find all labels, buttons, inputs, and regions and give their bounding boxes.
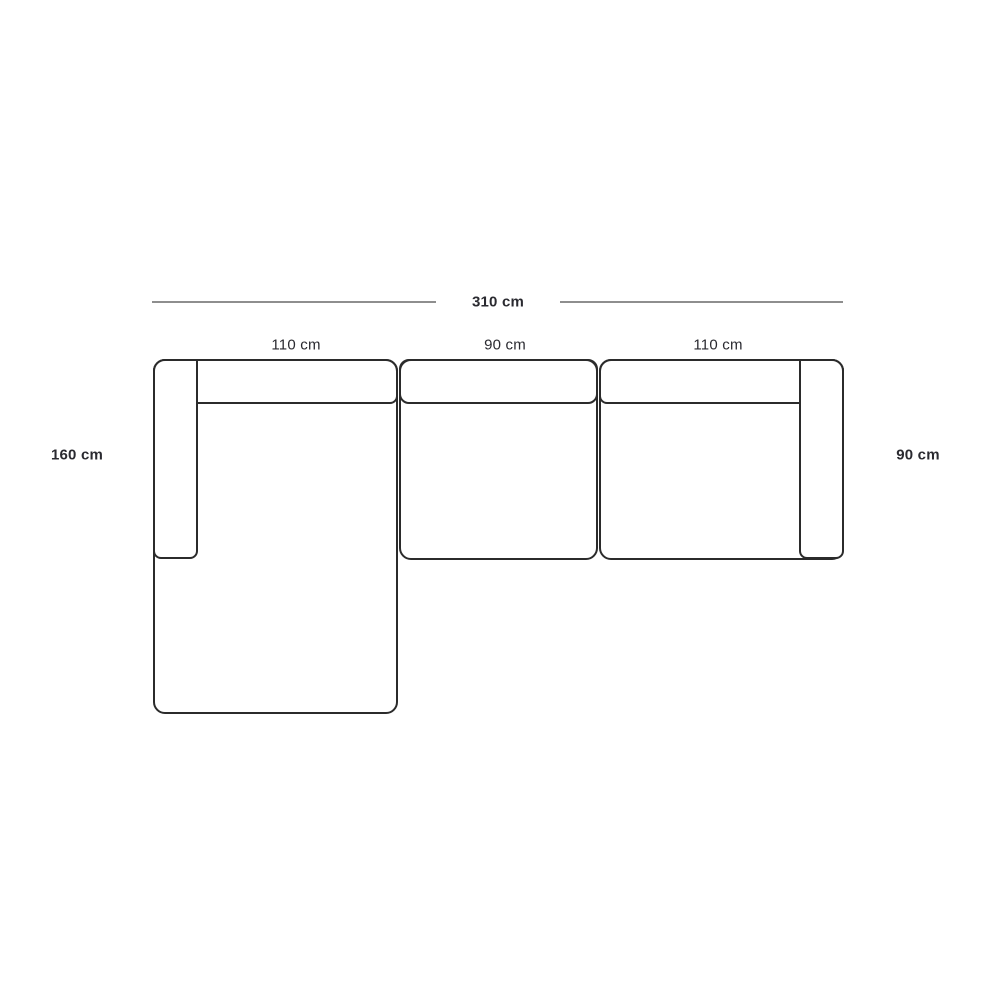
overall-width-dimension-line-right [560, 301, 843, 303]
right-armrest [799, 359, 844, 559]
middle-module-backrest [399, 359, 598, 404]
middle-module-width-label: 90 cm [484, 337, 526, 354]
right-module-width-label: 110 cm [693, 337, 742, 354]
overall-width-label: 310 cm [472, 294, 524, 311]
left-module-width-label: 110 cm [271, 337, 320, 354]
chaise-depth-label: 160 cm [51, 447, 103, 464]
overall-width-dimension-line-left [152, 301, 436, 303]
seat-depth-label: 90 cm [896, 447, 940, 464]
left-armrest [153, 359, 198, 559]
sofa-dimension-diagram: 310 cm 110 cm 90 cm 110 cm 160 cm 90 cm [0, 0, 1000, 1000]
